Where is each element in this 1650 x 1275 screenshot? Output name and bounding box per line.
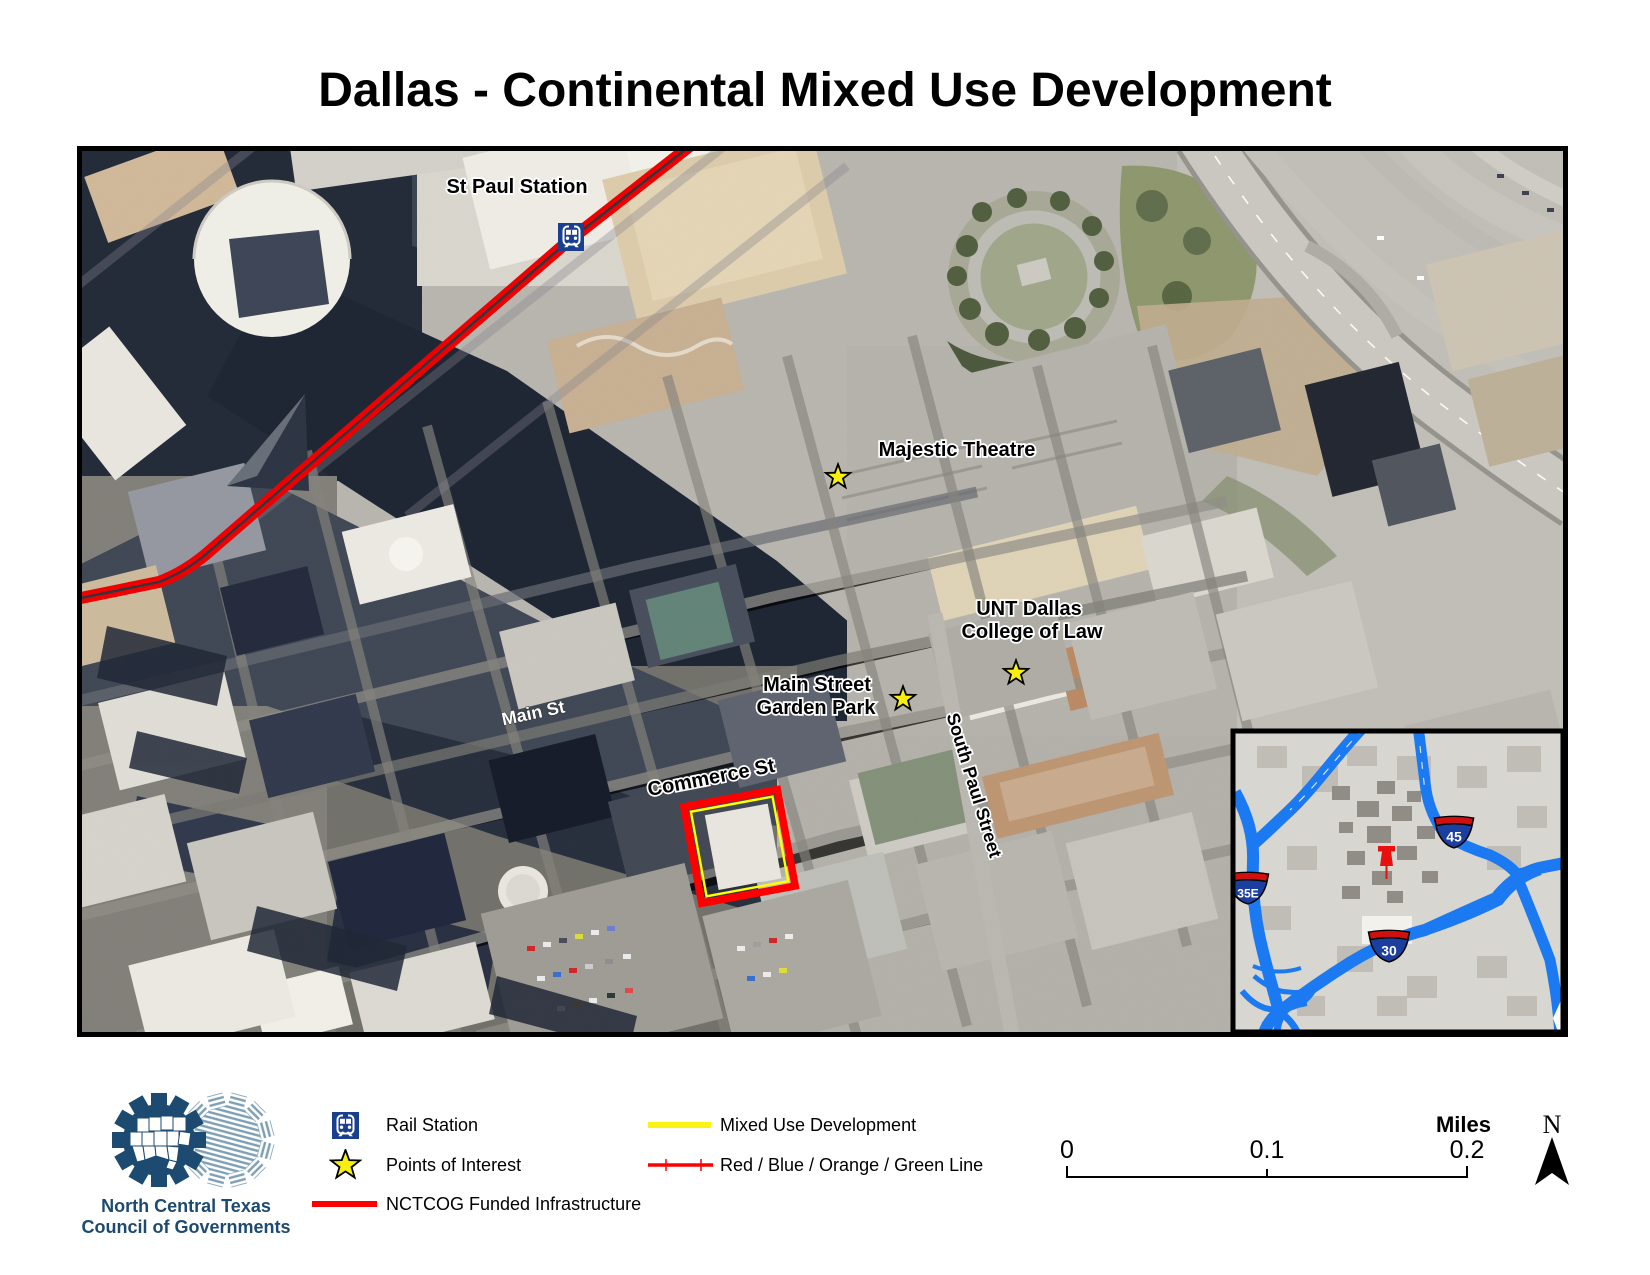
svg-text:0.2: 0.2 xyxy=(1450,1136,1485,1164)
svg-text:College of Law: College of Law xyxy=(961,621,1103,643)
svg-text:0: 0 xyxy=(1060,1136,1074,1164)
svg-text:Majestic Theatre: Majestic Theatre xyxy=(879,439,1036,461)
svg-text:UNT Dallas: UNT Dallas xyxy=(976,598,1082,620)
svg-text:Main Street: Main Street xyxy=(763,674,871,696)
svg-text:35E: 35E xyxy=(1237,886,1259,900)
svg-text:30: 30 xyxy=(1381,942,1397,958)
svg-text:St Paul Station: St Paul Station xyxy=(446,176,587,198)
svg-text:0.1: 0.1 xyxy=(1250,1136,1285,1164)
svg-text:N: N xyxy=(1543,1110,1562,1139)
svg-text:Miles: Miles xyxy=(1436,1112,1491,1137)
svg-text:45: 45 xyxy=(1446,828,1462,844)
svg-text:Garden Park: Garden Park xyxy=(757,697,877,719)
